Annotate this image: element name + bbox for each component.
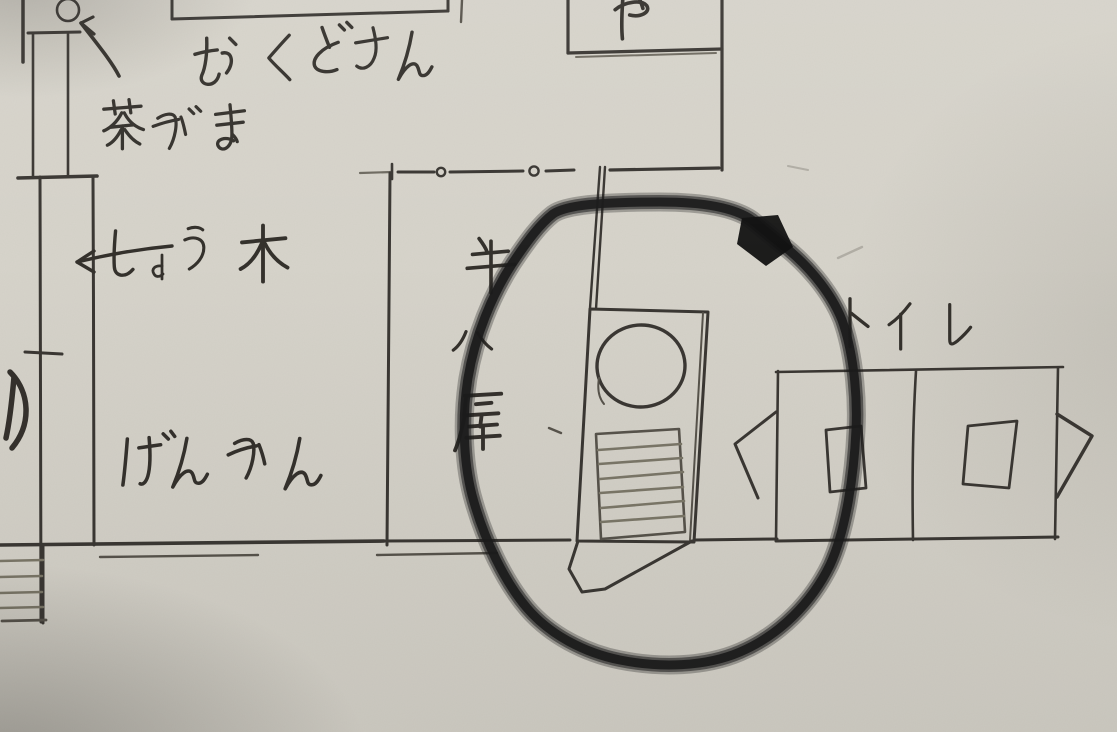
wall-tick [25,352,62,354]
paper-texture [0,0,1117,732]
floorplan-photo: おくどさん 茶がま、 しょう木 げんかん 牛小屋 トイレ や り) [0,0,1117,732]
floor-plan-drawing [0,0,1117,732]
